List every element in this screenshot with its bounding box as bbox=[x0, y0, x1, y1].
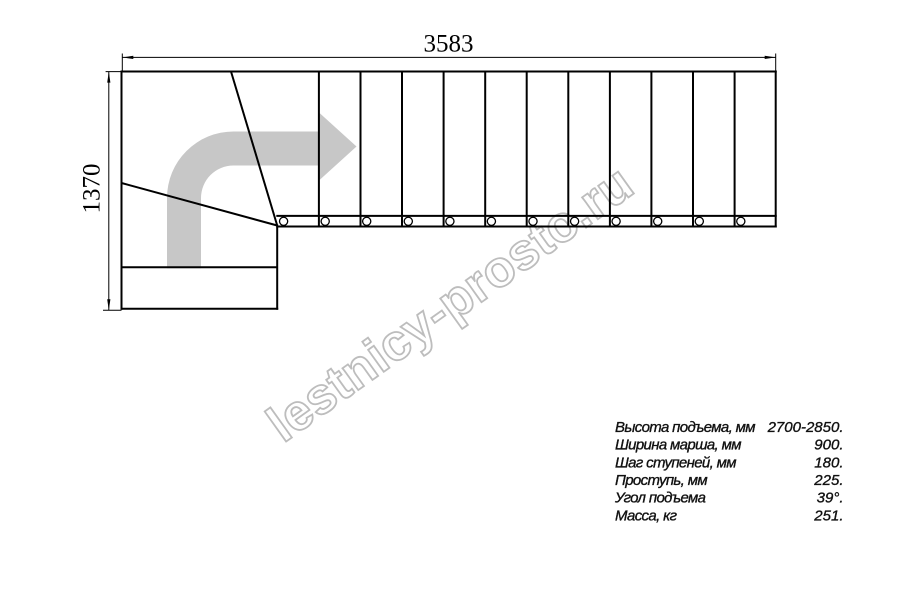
svg-text:2700-2850.: 2700-2850. bbox=[767, 419, 844, 436]
svg-text:Проступь, мм: Проступь, мм bbox=[615, 472, 707, 489]
svg-text:3583: 3583 bbox=[424, 31, 474, 58]
svg-text:39°.: 39°. bbox=[817, 490, 844, 507]
svg-text:180.: 180. bbox=[814, 454, 843, 471]
svg-text:251.: 251. bbox=[813, 507, 843, 524]
svg-text:225.: 225. bbox=[813, 472, 843, 489]
svg-text:1370: 1370 bbox=[79, 164, 106, 214]
svg-text:Ширина марша, мм: Ширина марша, мм bbox=[615, 437, 741, 454]
svg-text:Угол подъема: Угол подъема bbox=[614, 490, 706, 507]
svg-text:Шаг ступеней, мм: Шаг ступеней, мм bbox=[615, 454, 736, 471]
svg-text:Высота подъема, мм: Высота подъема, мм bbox=[615, 419, 755, 436]
svg-text:Масса, кг: Масса, кг bbox=[615, 507, 678, 524]
svg-text:900.: 900. bbox=[814, 437, 843, 454]
